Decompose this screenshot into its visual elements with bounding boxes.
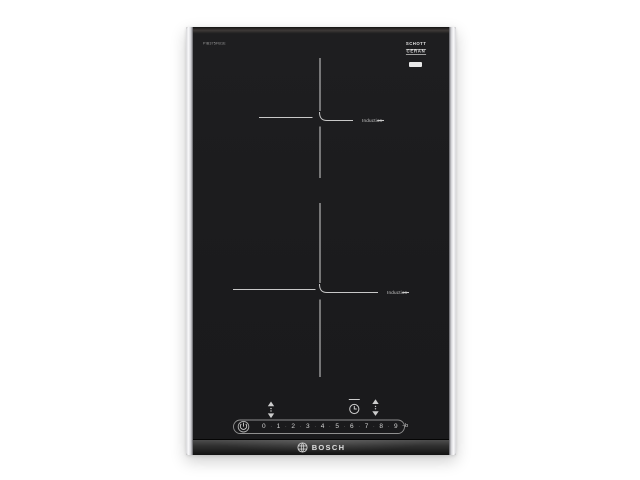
dot-separator: ·	[300, 425, 302, 430]
schott-ceran-logo: SCHOTT CERAN	[402, 42, 430, 57]
level-3: 3	[306, 424, 310, 431]
side-trim-left	[186, 27, 193, 455]
dot-separator: ·	[270, 425, 272, 430]
dot-separator: ·	[388, 425, 390, 430]
bosch-logo: BOSCH	[297, 442, 346, 453]
level-8: 8	[379, 424, 383, 431]
zone-label-upper: Induction	[362, 118, 382, 123]
power-level-scale: 0 · 1 · 2 · 3 · 4 · 5 · 6 · 7 · 8 · 9 –b	[262, 421, 408, 434]
schott-ceran-logo-line2: CERAN	[406, 49, 426, 55]
zone-label-lower: Induction	[387, 290, 407, 295]
dot-separator: ·	[344, 425, 346, 430]
dot-separator: ·	[373, 425, 375, 430]
level-2: 2	[291, 424, 295, 431]
front-edge: BOSCH	[193, 439, 449, 455]
ceramic-glass-surface: PIB375FB1E SCHOTT CERAN Induction Induct…	[193, 34, 449, 439]
level-4: 4	[321, 424, 325, 431]
level-6: 6	[350, 424, 354, 431]
boost-marker: –b	[402, 424, 408, 430]
induction-hob: PIB375FB1E SCHOTT CERAN Induction Induct…	[186, 27, 456, 455]
level-1: 1	[277, 424, 281, 431]
level-7: 7	[365, 424, 369, 431]
dot-separator: ·	[358, 425, 360, 430]
ceran-badge	[409, 62, 422, 67]
level-0: 0	[262, 424, 266, 431]
product-photo: PIB375FB1E SCHOTT CERAN Induction Induct…	[0, 0, 640, 480]
dot-separator: ·	[285, 425, 287, 430]
side-trim-right	[449, 27, 456, 455]
level-9: 9	[394, 424, 398, 431]
level-5: 5	[335, 424, 339, 431]
model-label: PIB375FB1E	[203, 42, 226, 46]
bosch-symbol-icon	[297, 442, 308, 453]
dot-separator: ·	[329, 425, 331, 430]
dot-separator: ·	[314, 425, 316, 430]
top-bevel	[193, 27, 449, 34]
bosch-wordmark: BOSCH	[312, 444, 346, 452]
schott-ceran-logo-line1: SCHOTT	[406, 42, 426, 46]
